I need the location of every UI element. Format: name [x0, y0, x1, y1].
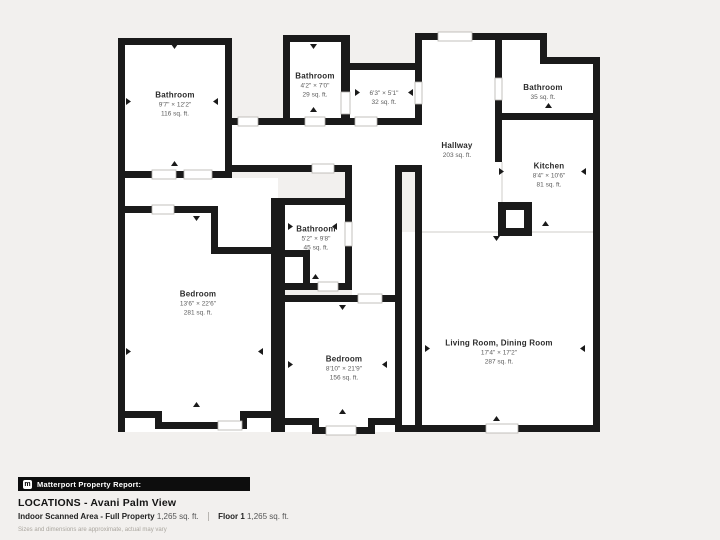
report-bar-label: Matterport Property Report:	[37, 480, 141, 489]
floor-label: Floor 1	[218, 512, 245, 521]
report-bar: m Matterport Property Report:	[18, 477, 250, 491]
scanned-area-value: 1,265 sq. ft.	[157, 512, 199, 521]
property-title: LOCATIONS - Avani Palm View	[18, 497, 176, 509]
matterport-logo-icon: m	[23, 480, 32, 489]
floor-plan-svg	[0, 0, 720, 470]
kitchen-column	[498, 202, 532, 236]
disclaimer-text: Sizes and dimensions are approximate, ac…	[18, 527, 167, 533]
area-summary-line: Indoor Scanned Area - Full Property 1,26…	[18, 512, 289, 521]
divider	[208, 512, 209, 521]
scanned-area-label: Indoor Scanned Area - Full Property	[18, 512, 155, 521]
floor-value: 1,265 sq. ft.	[247, 512, 289, 521]
floor-plan-report-page: Bathroom 9'7" × 12'2" 116 sq. ft. Bathro…	[0, 0, 720, 540]
